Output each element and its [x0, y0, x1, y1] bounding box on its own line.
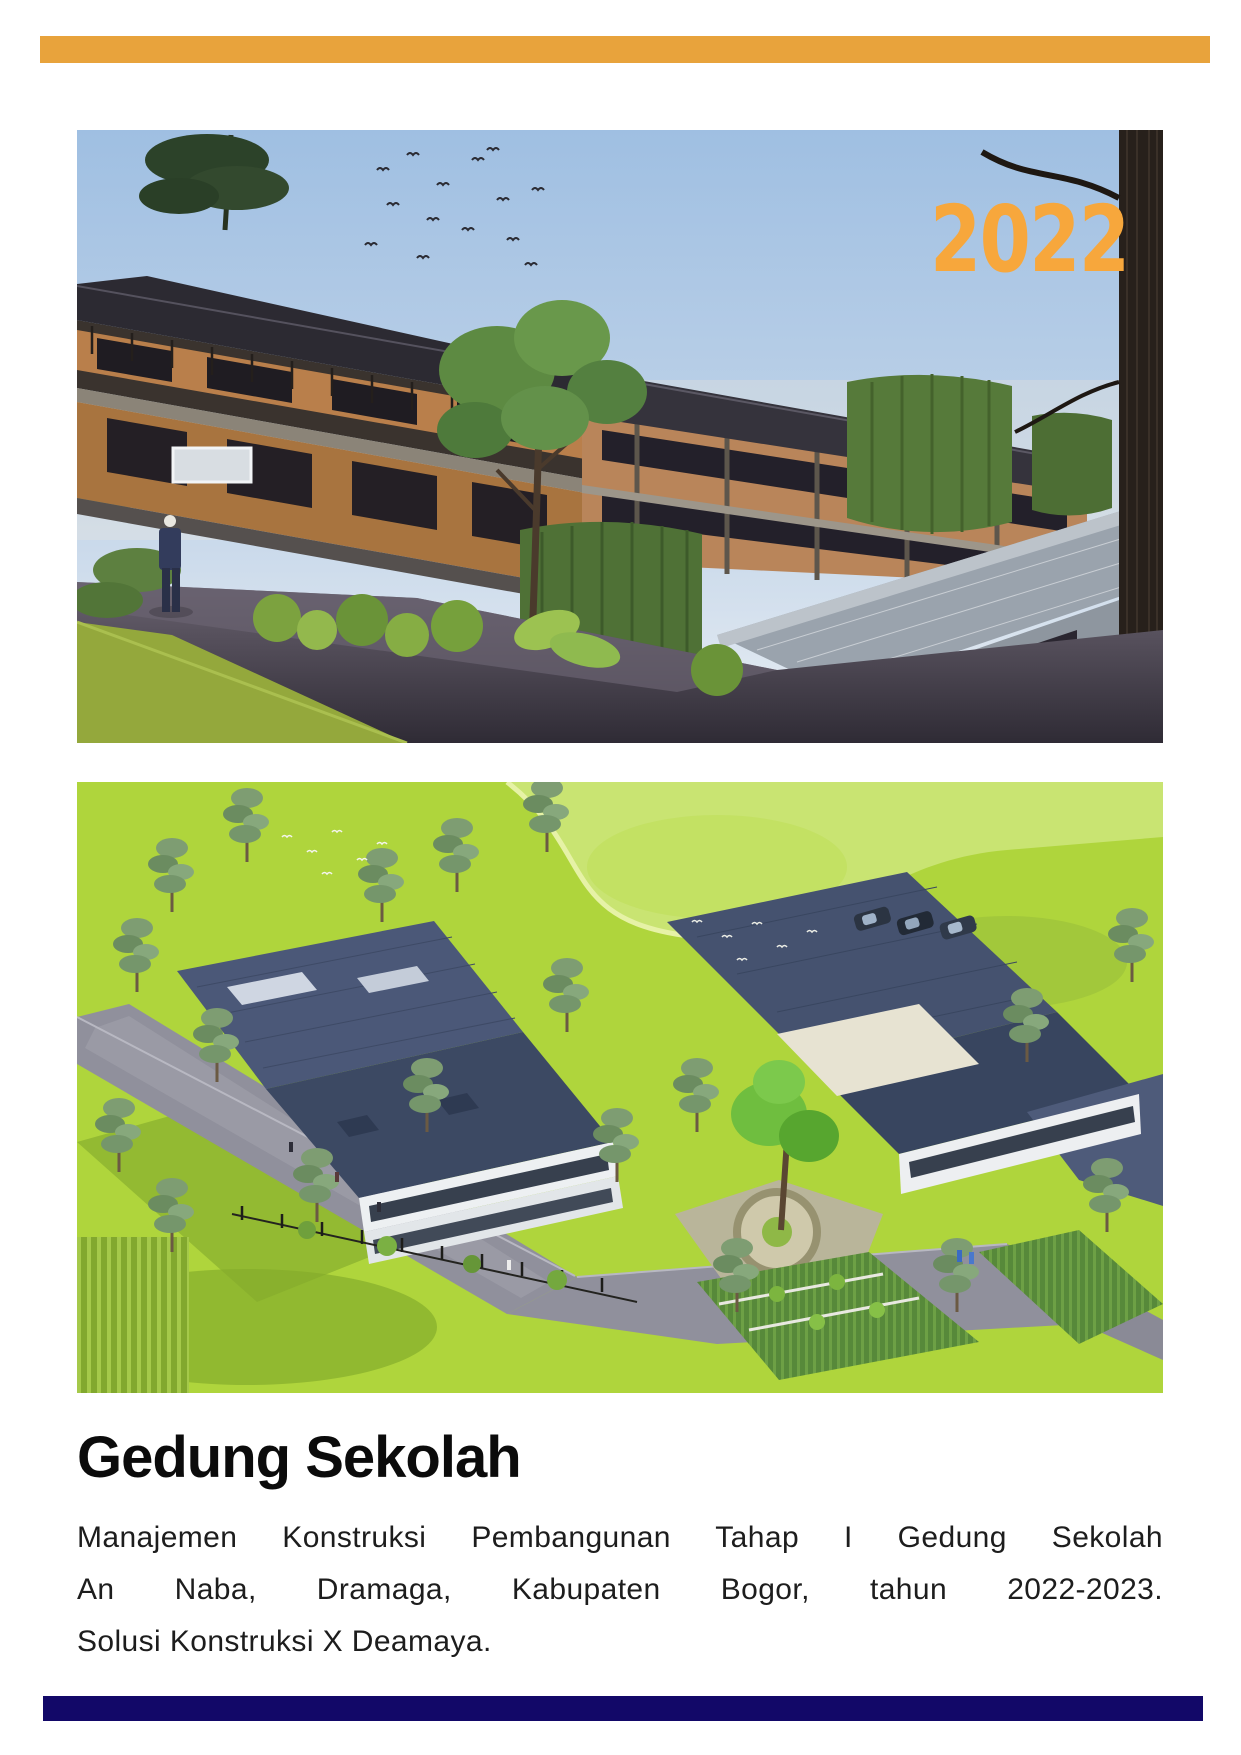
project-title: Gedung Sekolah [77, 1425, 1163, 1492]
description-line-3: Solusi Konstruksi X Deamaya. [77, 1616, 1163, 1668]
description-line-2: An Naba, Dramaga, Kabupaten Bogor, tahun… [77, 1564, 1163, 1616]
year-badge: 2022 [930, 194, 1128, 286]
aerial-photo [77, 782, 1163, 1393]
exterior-photo: 2022 [77, 130, 1163, 743]
ground-floor-window [173, 448, 251, 482]
aerial-render-art [77, 782, 1163, 1393]
top-accent-bar [40, 36, 1210, 63]
portfolio-page: 2022 [0, 0, 1241, 1755]
bottom-accent-bar [43, 1696, 1203, 1721]
project-description: Manajemen Konstruksi Pembangunan Tahap I… [77, 1512, 1163, 1668]
description-line-1: Manajemen Konstruksi Pembangunan Tahap I… [77, 1512, 1163, 1564]
